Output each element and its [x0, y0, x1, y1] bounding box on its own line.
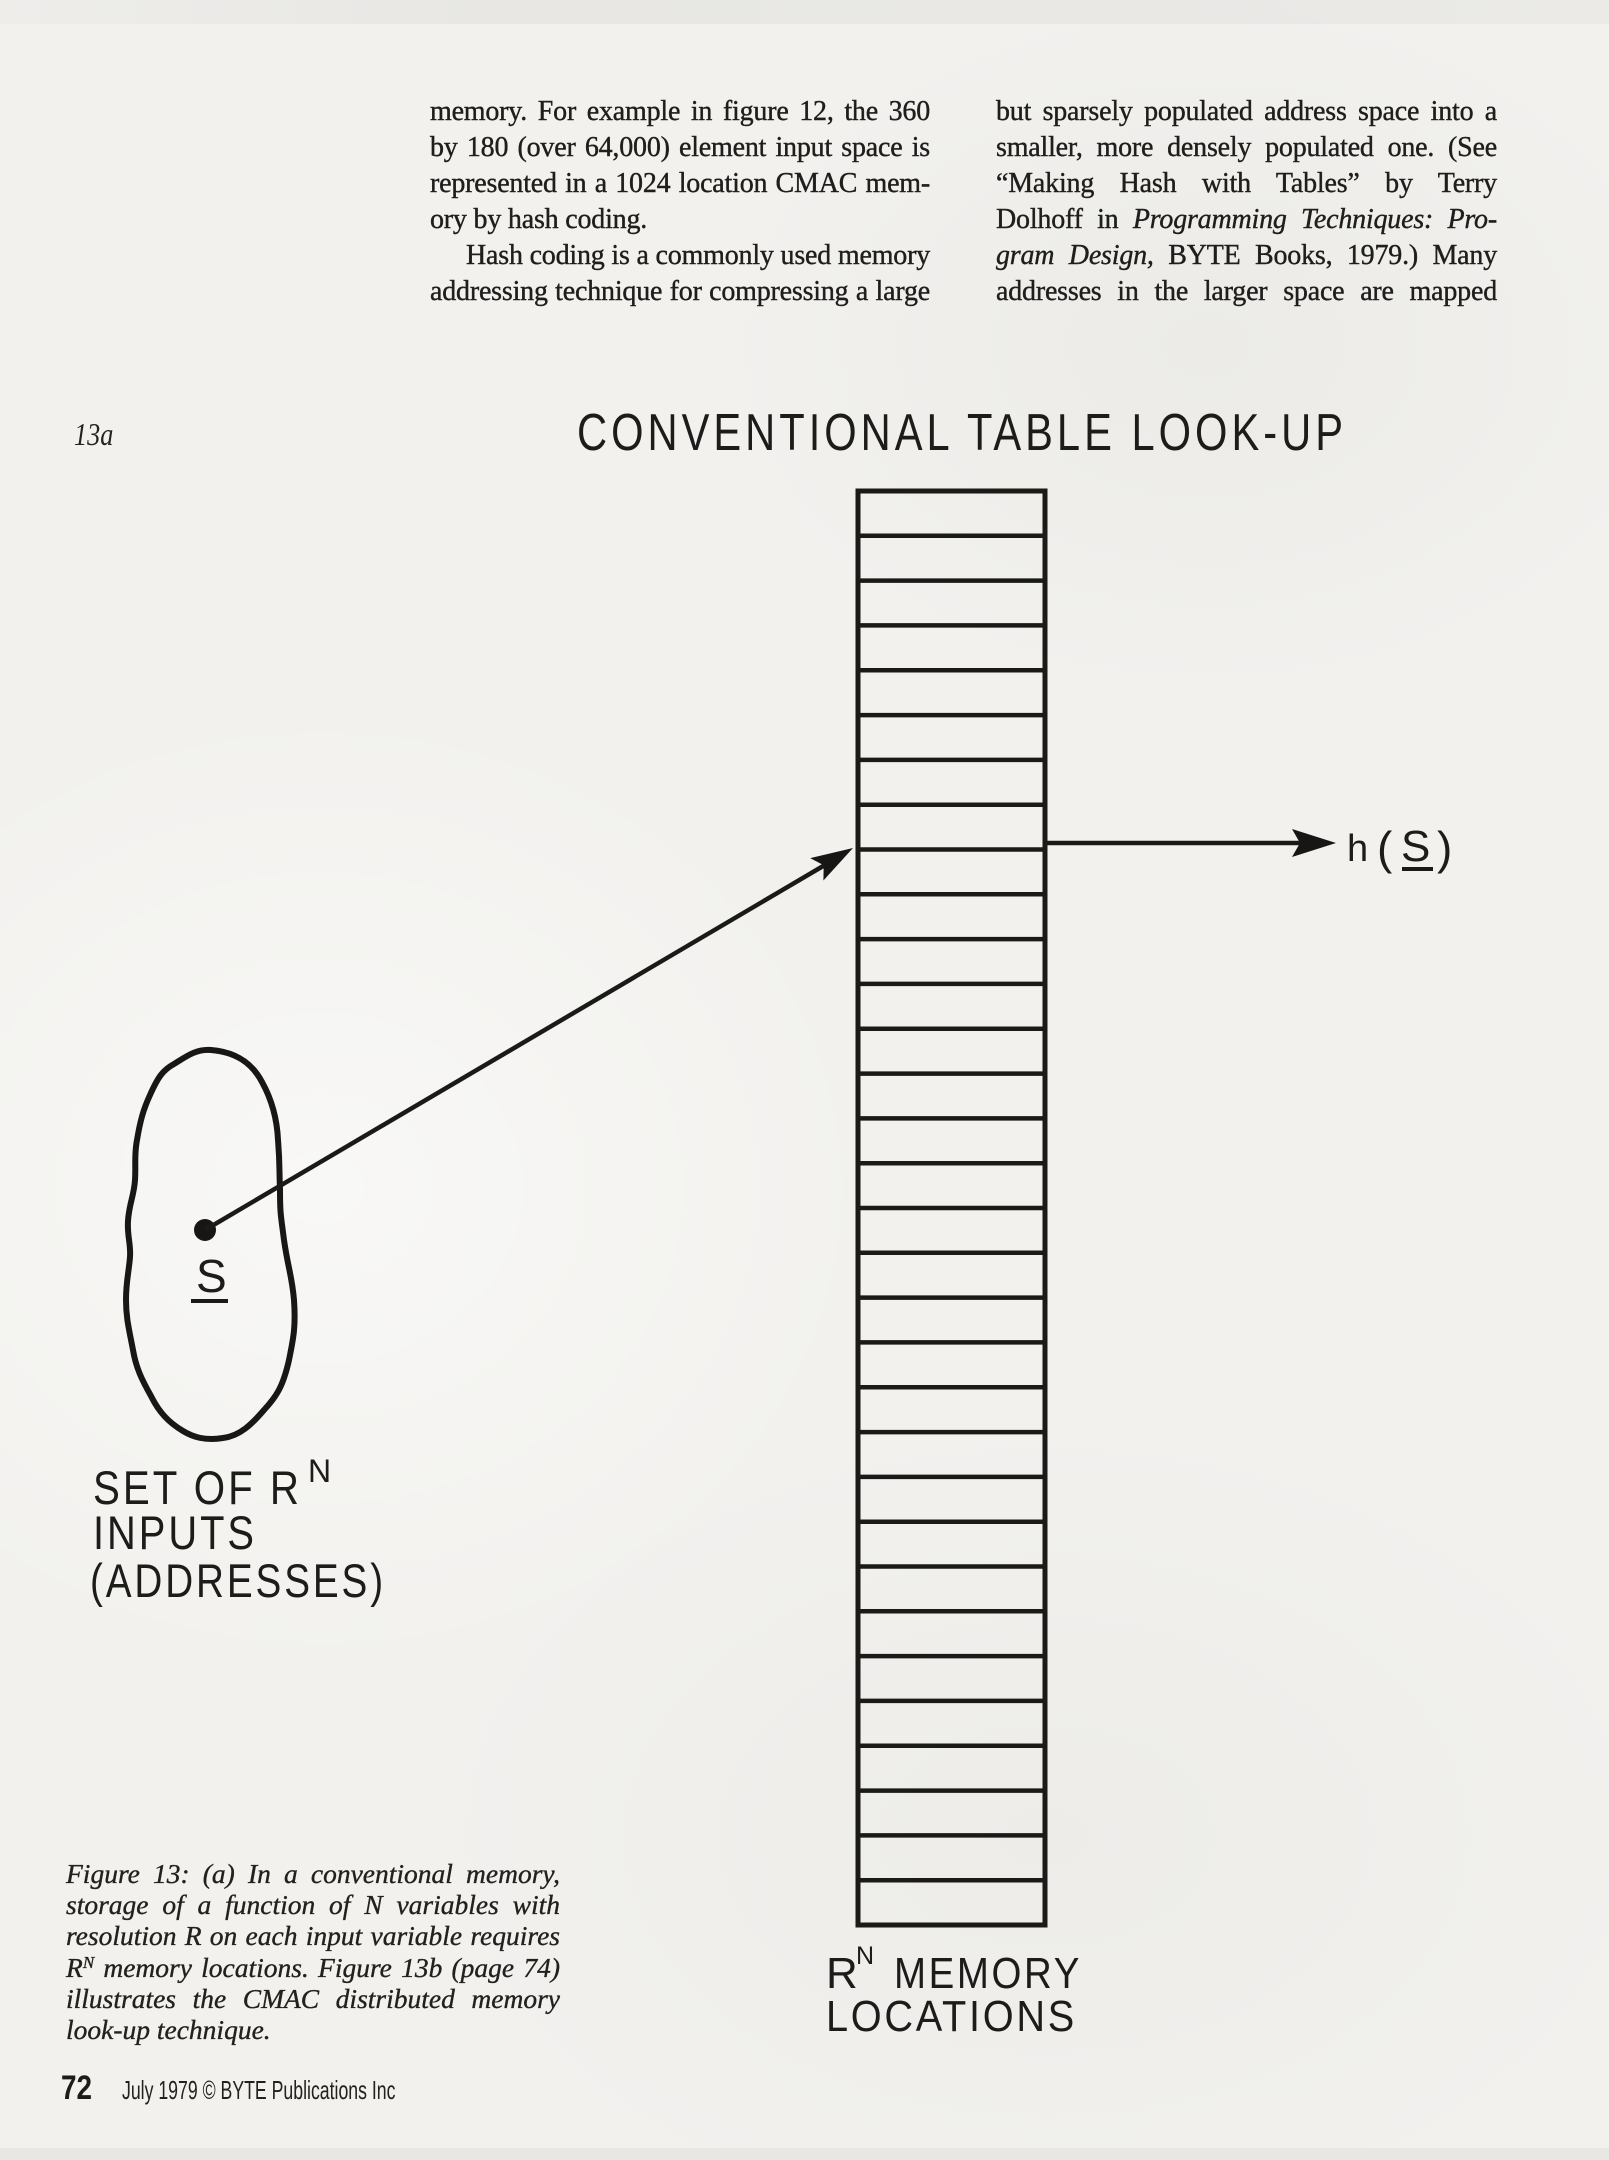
svg-text:h: h [1347, 828, 1368, 870]
svg-text:S: S [1401, 822, 1430, 871]
svg-text:CONVENTIONAL TABLE LOOK-UP: CONVENTIONAL TABLE LOOK-UP [577, 404, 1347, 462]
svg-text:MEMORY: MEMORY [894, 1949, 1082, 1998]
svg-text:): ) [1437, 822, 1452, 874]
svg-text:(ADDRESSES): (ADDRESSES) [90, 1554, 386, 1607]
svg-text:INPUTS: INPUTS [93, 1506, 257, 1559]
svg-text:N: N [856, 1942, 874, 1970]
svg-text:(: ( [1377, 822, 1393, 874]
svg-text:LOCATIONS: LOCATIONS [826, 1992, 1077, 2041]
svg-text:R: R [826, 1949, 858, 1998]
svg-text:N: N [308, 1453, 331, 1489]
svg-text:S: S [196, 1250, 227, 1302]
